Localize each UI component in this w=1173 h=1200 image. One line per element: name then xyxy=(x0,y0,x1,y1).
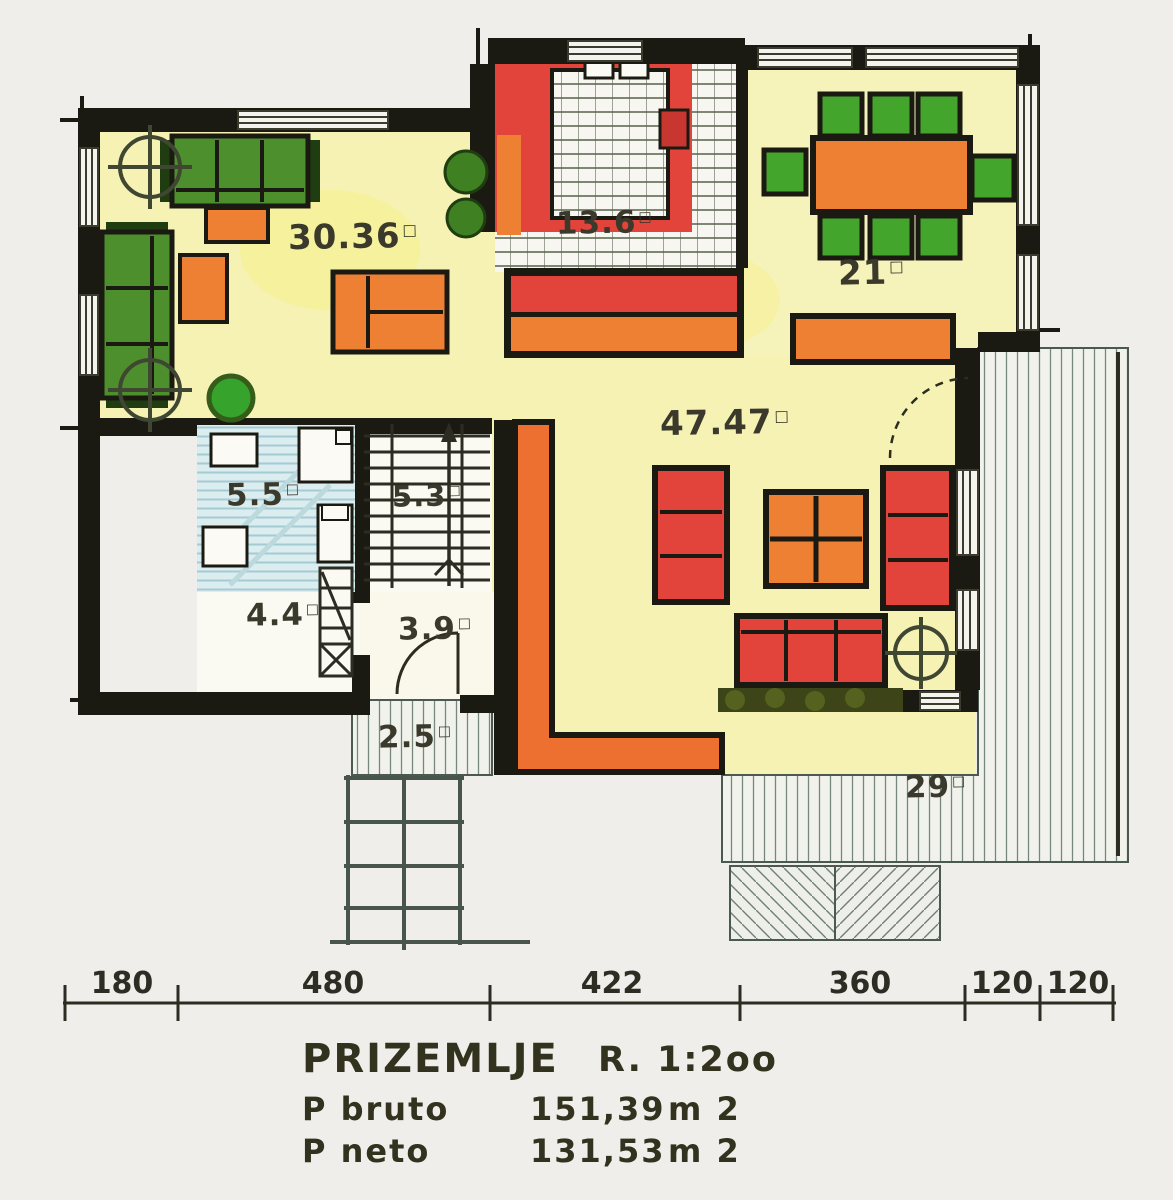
bruto-unit: m 2 xyxy=(668,1090,741,1128)
dimension-120-b: 120 xyxy=(1047,966,1110,1001)
dining-table xyxy=(813,138,970,212)
dining-chair xyxy=(918,216,960,258)
storage-door-symbol xyxy=(320,568,352,676)
room-label-living: 30.36□ xyxy=(288,219,419,255)
floor-plan-drawing xyxy=(0,0,1173,1200)
coffee-table xyxy=(206,208,268,242)
dining-chair xyxy=(820,94,862,136)
neto-unit: m 2 xyxy=(668,1132,741,1170)
room-label-wc: 4.4□ xyxy=(246,599,321,631)
hedge-wall xyxy=(718,688,903,712)
sideboard xyxy=(793,316,953,362)
side-table xyxy=(180,255,227,322)
room-label-terrace: 29□ xyxy=(905,771,967,803)
room-label-kitchen: 13.6□ xyxy=(556,207,653,240)
plant-icon xyxy=(447,199,485,237)
room-label-bathroom: 5.5□ xyxy=(226,479,301,511)
kitchen-appliance xyxy=(660,110,688,148)
bruto-value: 151,39 xyxy=(530,1090,665,1128)
floor-title: PRIZEMLJE xyxy=(302,1036,559,1082)
sofa-left xyxy=(102,232,172,398)
sofa-top xyxy=(172,136,308,206)
pergola-grid xyxy=(330,775,530,950)
terrace-ramp xyxy=(730,866,940,940)
lounge-sofa-right xyxy=(883,468,952,608)
lounge-sofa-bottom xyxy=(737,616,885,685)
dining-chair xyxy=(820,216,862,258)
plant-icon xyxy=(209,376,253,420)
dimension-180: 180 xyxy=(91,966,154,1001)
dining-chair xyxy=(870,94,912,136)
neto-value: 131,53 xyxy=(530,1132,665,1170)
room-label-entry: 2.5□ xyxy=(378,721,453,753)
room-label-hall: 3.9□ xyxy=(398,613,473,645)
neto-label: P neto xyxy=(302,1132,430,1170)
sink-fixture xyxy=(211,434,257,466)
bidet-fixture xyxy=(203,527,247,566)
dimension-480: 480 xyxy=(302,966,365,1001)
room-label-stairs: 5.3□ xyxy=(392,481,462,511)
plant-icon xyxy=(445,151,487,193)
dimension-120-a: 120 xyxy=(971,966,1034,1001)
lounge-sofa-left xyxy=(655,468,727,602)
room-label-dining: 21□ xyxy=(838,255,905,290)
bruto-label: P bruto xyxy=(302,1090,449,1128)
dining-chair xyxy=(764,150,806,194)
dining-chair xyxy=(870,216,912,258)
drawing-scale: R. 1:2oo xyxy=(598,1040,778,1080)
dining-chair xyxy=(918,94,960,136)
dimension-360: 360 xyxy=(829,966,892,1001)
room-label-lounge: 47.47□ xyxy=(660,405,791,441)
kitchen-bar-counter xyxy=(504,268,744,358)
floor-plan-sheet: 30.36□ 13.6□ 21□ 47.47□ 5.5□ 5.3□ 4.4□ 3… xyxy=(0,0,1173,1200)
dimension-422: 422 xyxy=(581,966,644,1001)
dining-chair xyxy=(972,156,1014,200)
